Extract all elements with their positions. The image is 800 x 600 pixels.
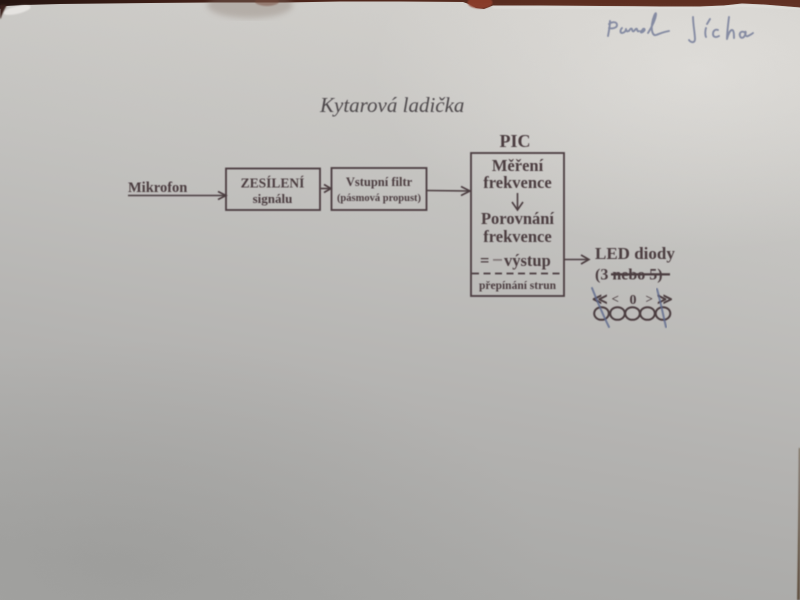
svg-text:<: < xyxy=(612,291,619,306)
svg-text:přepínání strun: přepínání strun xyxy=(479,280,557,292)
svg-text:LED diody: LED diody xyxy=(595,244,675,263)
svg-text:PIC: PIC xyxy=(500,131,531,151)
svg-text:frekvence: frekvence xyxy=(483,173,551,192)
svg-text:>: > xyxy=(646,291,653,306)
svg-text:0: 0 xyxy=(630,293,637,308)
svg-text:signálu: signálu xyxy=(253,191,293,206)
svg-text:výstup: výstup xyxy=(504,251,551,270)
svg-text:=: = xyxy=(480,251,489,270)
svg-text:Mikrofon: Mikrofon xyxy=(128,180,187,196)
svg-text:Kytarová ladička: Kytarová ladička xyxy=(319,93,464,117)
svg-text:frekvence: frekvence xyxy=(483,227,551,246)
svg-text:Porovnání: Porovnání xyxy=(481,209,554,228)
svg-text:(pásmová propust): (pásmová propust) xyxy=(337,193,422,204)
svg-text:Vstupní filtr: Vstupní filtr xyxy=(346,175,413,189)
svg-text:ZESÍLENÍ: ZESÍLENÍ xyxy=(241,176,305,191)
